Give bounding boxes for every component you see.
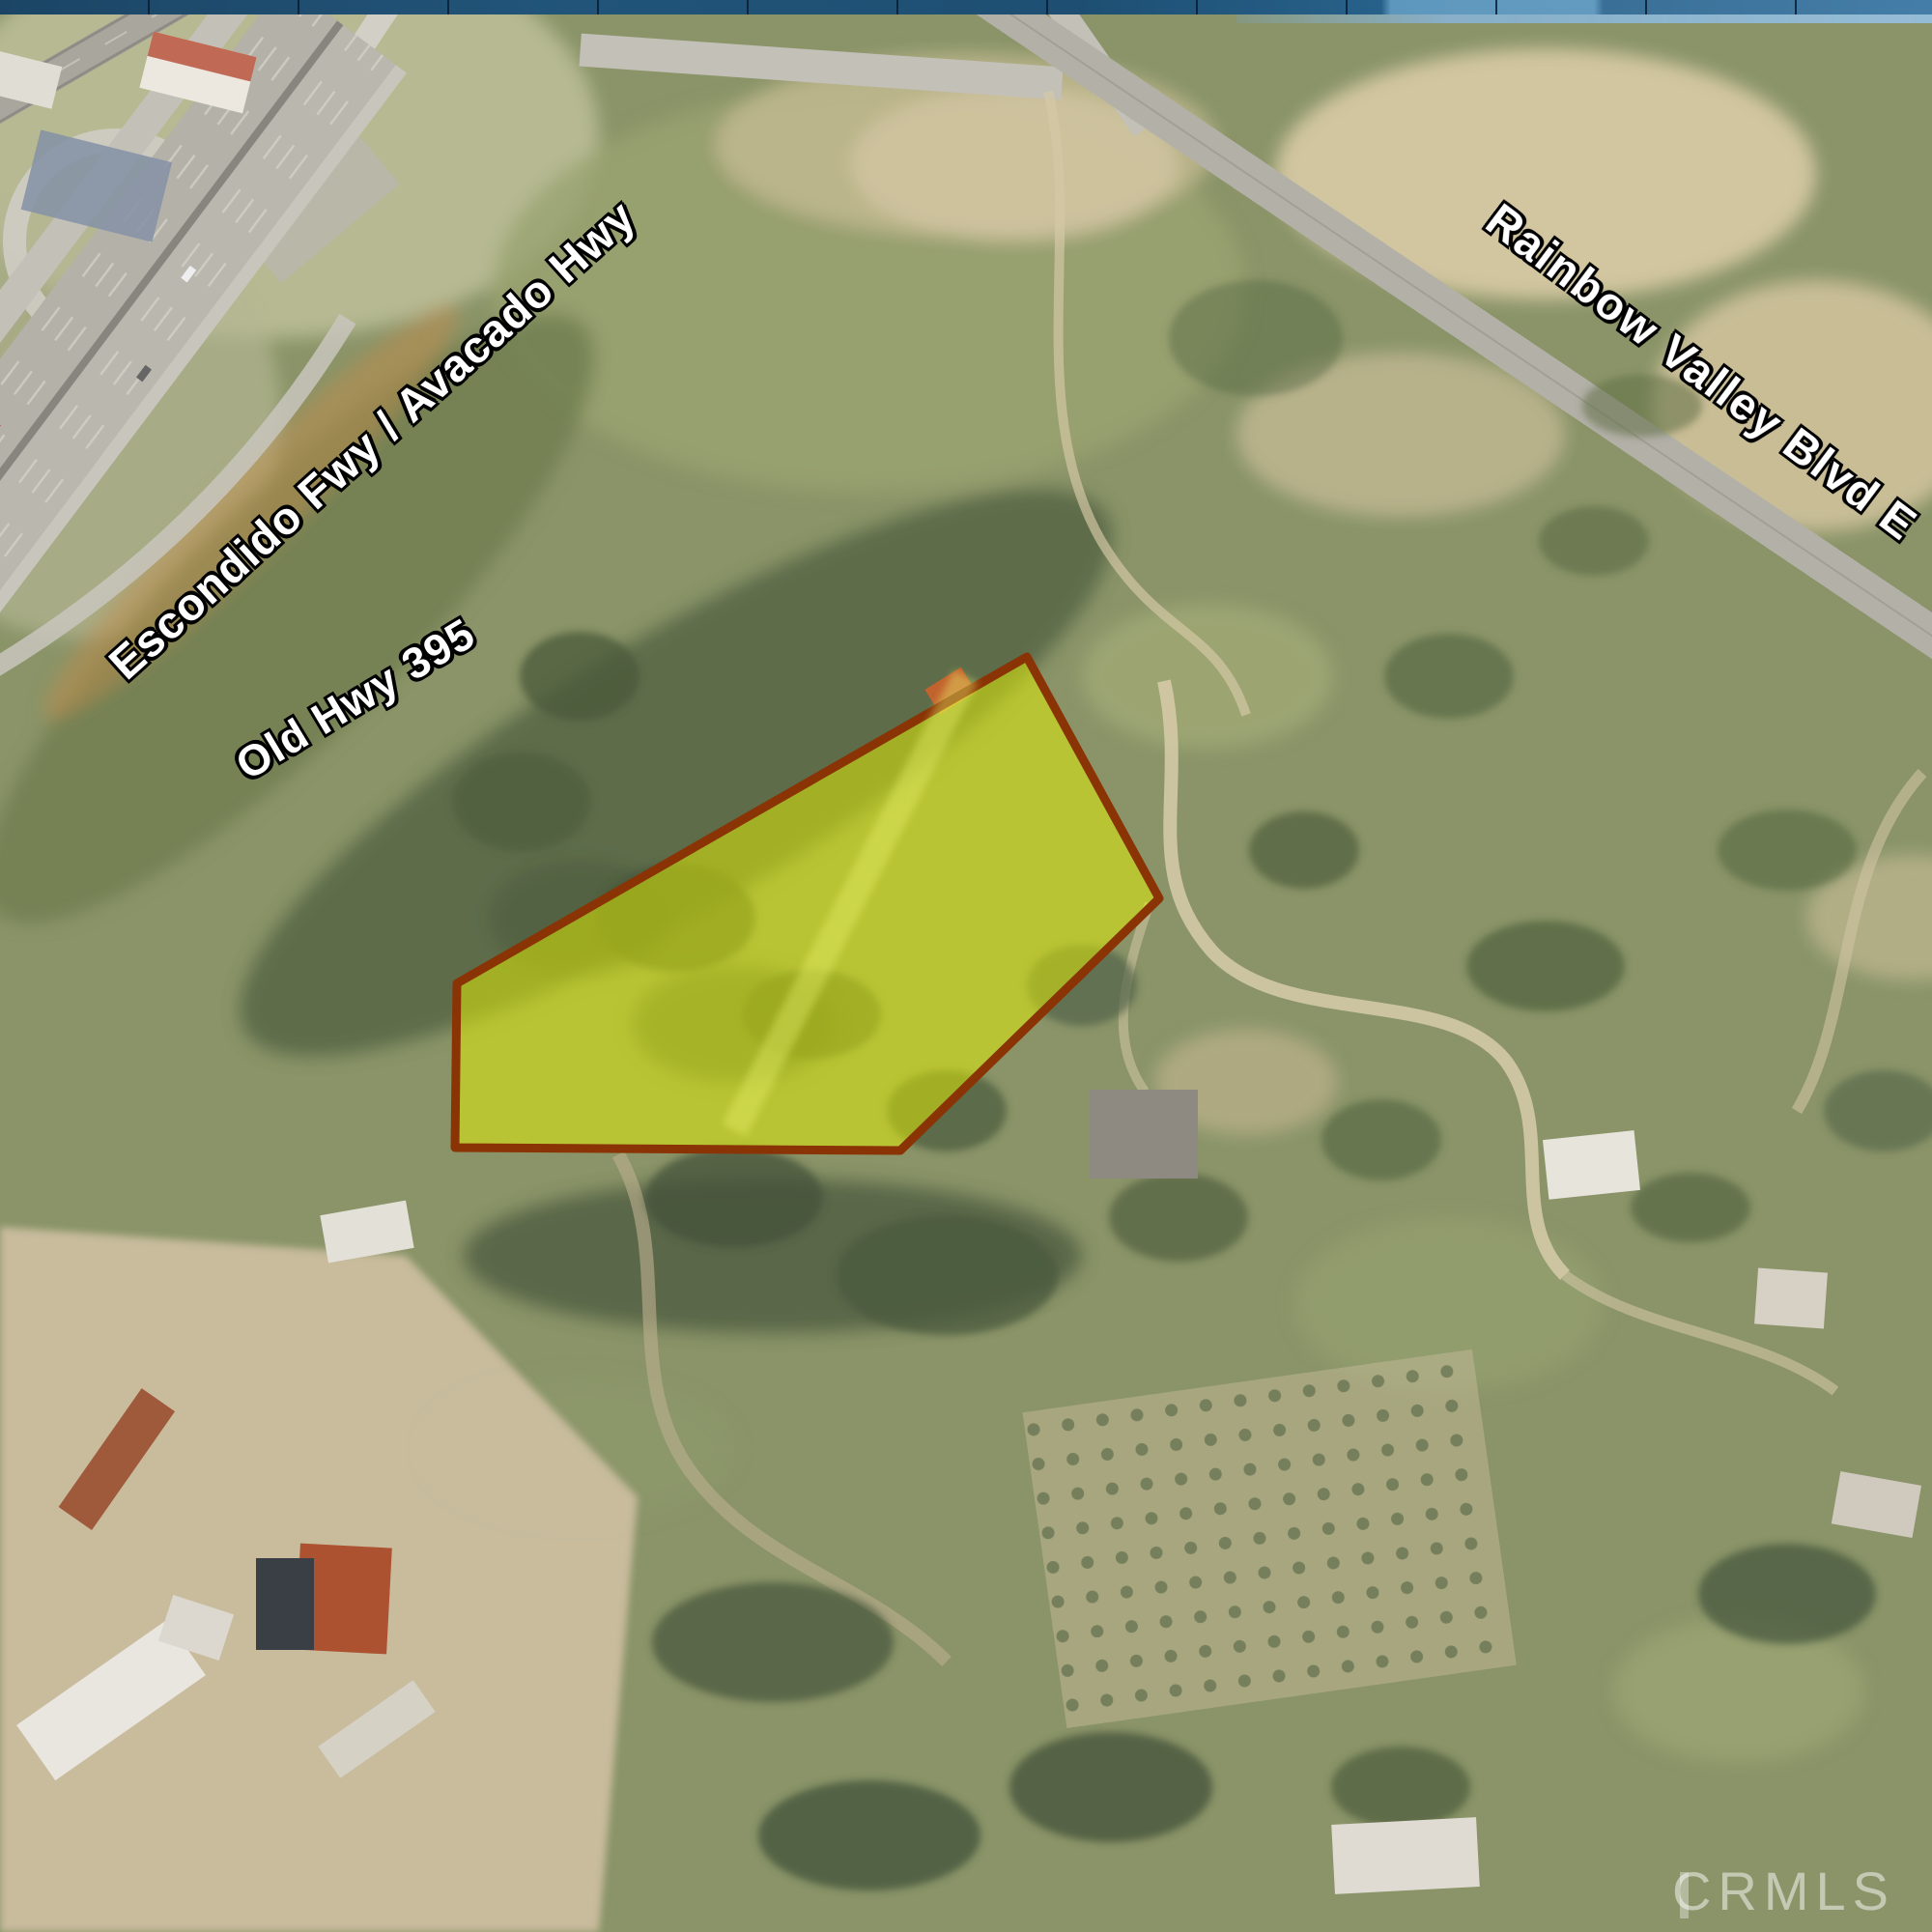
map-top-border-bar	[0, 0, 1932, 14]
crmls-watermark: CRMLS	[1672, 1860, 1895, 1922]
building-white-house-3	[1331, 1817, 1480, 1894]
map-top-border-bar-highlight	[1236, 14, 1932, 23]
satellite-imagery	[0, 0, 1932, 1932]
orchard-grid	[1022, 1350, 1516, 1728]
building-white-house-1	[1543, 1130, 1640, 1200]
aerial-map-image: Escondido Fwy / Avacado Hwy Old Hwy 395 …	[0, 0, 1932, 1932]
building-white-house-2	[1754, 1268, 1828, 1329]
building-white-house-4	[1832, 1471, 1921, 1538]
building-grey-house	[1090, 1090, 1198, 1179]
industrial-yard	[0, 1201, 638, 1932]
